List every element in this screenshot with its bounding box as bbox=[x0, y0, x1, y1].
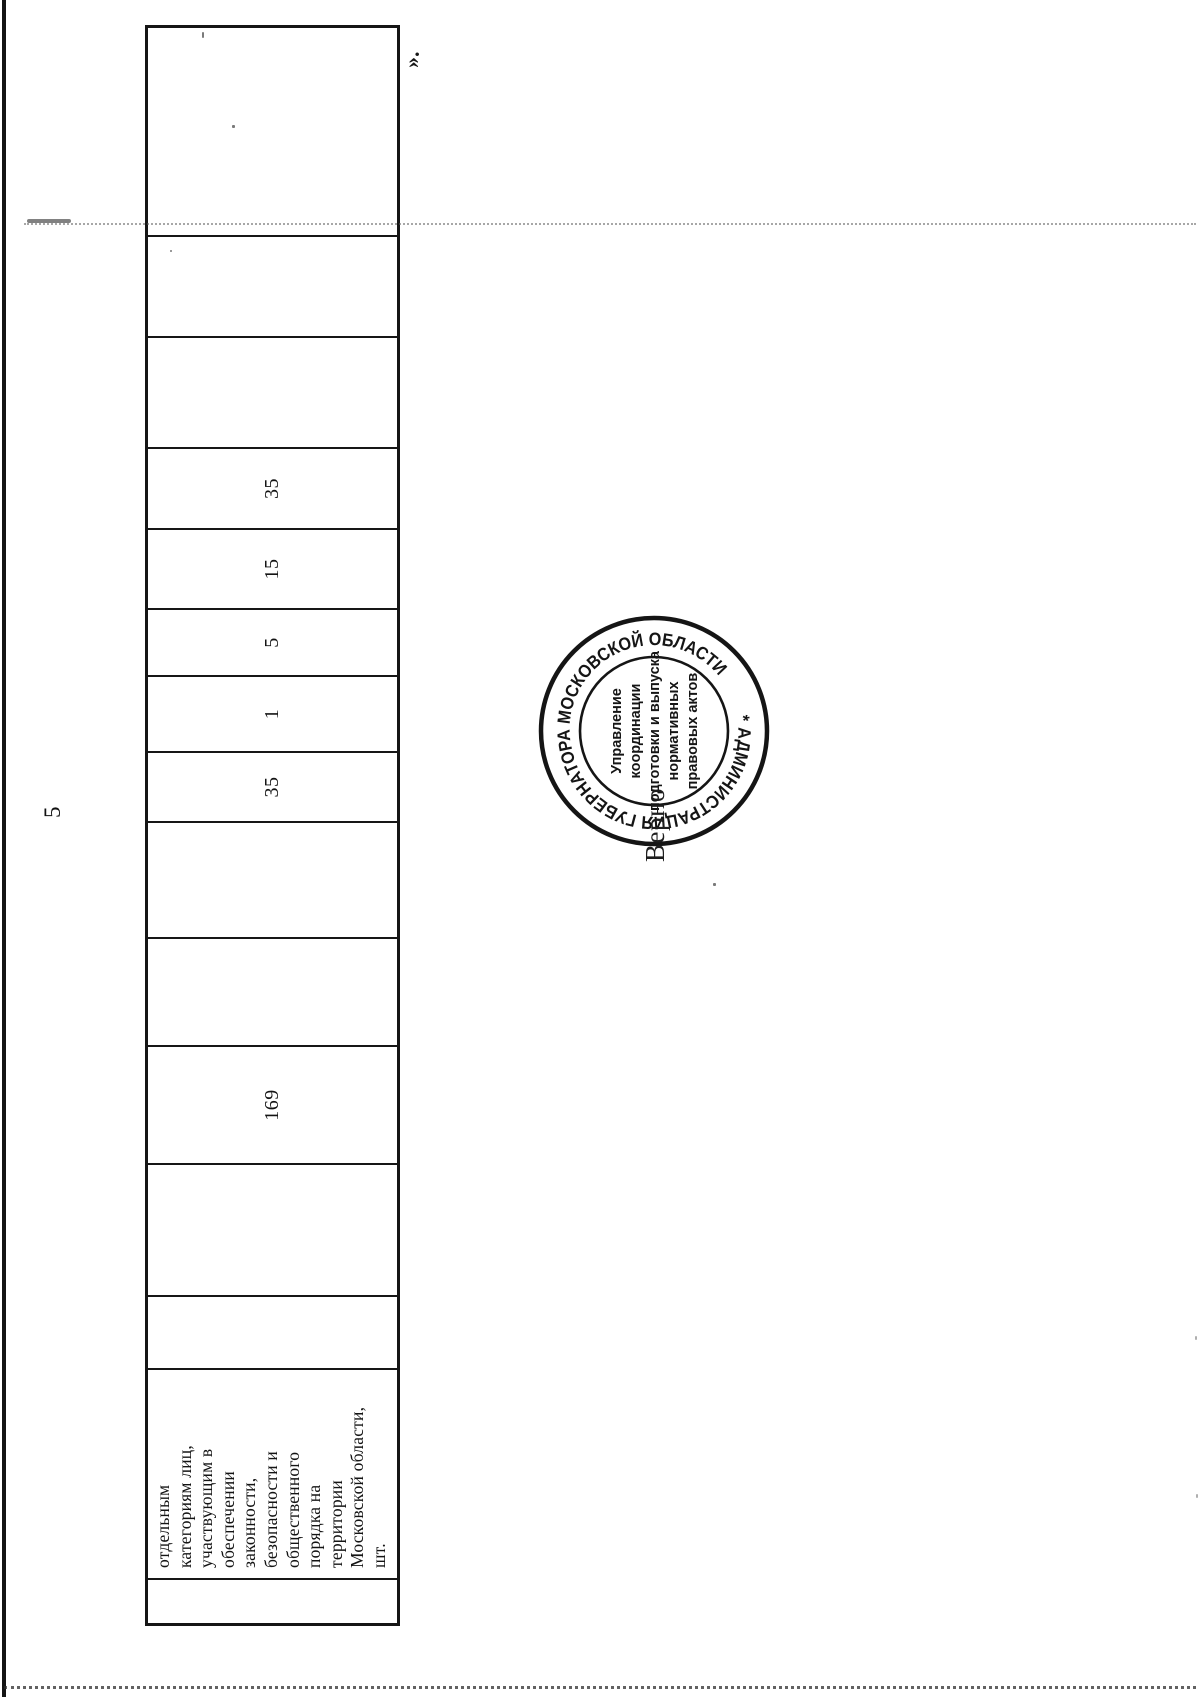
table-cell bbox=[148, 28, 397, 235]
scan-speck bbox=[170, 250, 172, 252]
table-cell bbox=[148, 821, 397, 937]
table-cell bbox=[148, 1163, 397, 1295]
table-cell-value: 169 bbox=[148, 1045, 397, 1163]
scanned-document-page: { "page": { "number": "5", "closing_quot… bbox=[0, 0, 1200, 1697]
bottom-edge-artifact bbox=[4, 1686, 1196, 1689]
table-cell-value: 35 bbox=[148, 447, 397, 528]
stamp-inner-text-line: Управление bbox=[609, 688, 625, 774]
table-cell bbox=[148, 235, 397, 336]
rotated-document-page: 5 отдельным категориям лиц, участвующим … bbox=[0, 0, 1200, 1697]
scan-speck bbox=[713, 883, 716, 886]
table-cell bbox=[148, 937, 397, 1045]
crease-smudge-artifact bbox=[27, 219, 71, 223]
page-number: 5 bbox=[40, 807, 66, 819]
scan-speck bbox=[1196, 1494, 1198, 1498]
table-cell-value: 35 bbox=[148, 751, 397, 821]
table-cell-value: 1 bbox=[148, 675, 397, 751]
scan-speck bbox=[202, 32, 204, 38]
crease-line-artifact bbox=[24, 223, 1196, 225]
stamp-inner-text-line: правовых актов bbox=[685, 673, 701, 790]
scan-speck bbox=[1195, 1336, 1197, 1340]
stamp-inner-text-line: координации bbox=[628, 684, 644, 779]
page-edge-line-artifact bbox=[2, 0, 6, 1697]
table-cell bbox=[148, 1578, 397, 1623]
table-cell-value: 5 bbox=[148, 608, 397, 675]
table-cell-value: 15 bbox=[148, 528, 397, 608]
table-cell bbox=[148, 336, 397, 447]
certification-label: Верно bbox=[640, 788, 671, 862]
table-header-cell: отдельным категориям лиц, участвующим в … bbox=[148, 1368, 397, 1578]
closing-quote-mark: ». bbox=[399, 52, 425, 69]
stamp-inner-text-block: Управление координации подготовки и выпу… bbox=[609, 650, 701, 811]
stamp-inner-text-line: нормативных bbox=[666, 681, 682, 780]
data-table: отдельным категориям лиц, участвующим в … bbox=[145, 25, 400, 1626]
scan-speck bbox=[232, 125, 235, 128]
table-cell bbox=[148, 1295, 397, 1368]
stamp-inner-text-line: подготовки и выпуска bbox=[647, 650, 663, 811]
